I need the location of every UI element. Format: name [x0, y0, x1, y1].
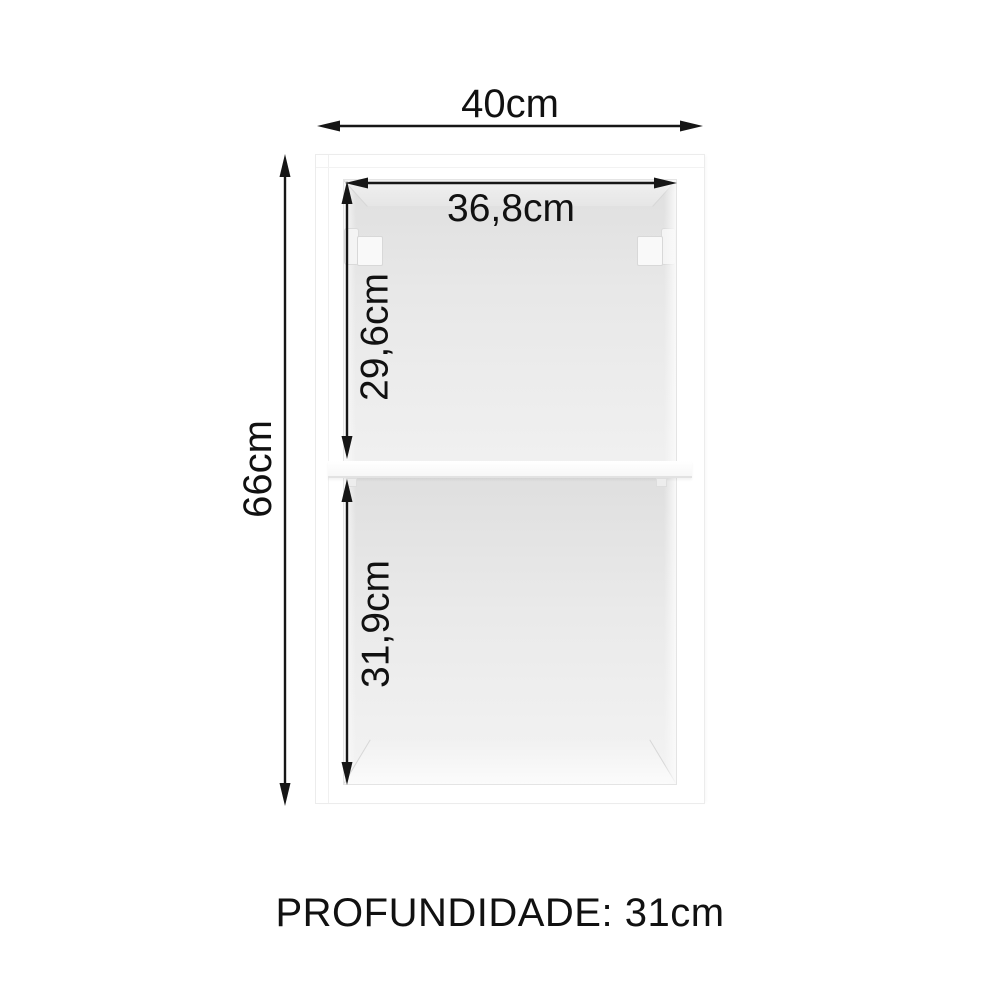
shelf-pin-left: [346, 478, 357, 487]
cabinet-frame-edge: [328, 155, 329, 803]
shelf-pin-right: [656, 478, 667, 487]
hinge-mount-right: [636, 228, 676, 266]
outer-height-arrow: [280, 154, 291, 806]
cabinet-interior: [344, 180, 676, 784]
inner-width-label: 36,8cm: [345, 189, 677, 228]
hinge-mount-left: [344, 228, 384, 266]
interior-floor: [344, 740, 676, 784]
cabinet-frame-edge: [316, 167, 704, 168]
outer-width-label: 40cm: [316, 84, 704, 124]
upper-compartment-height-label: 29,6cm: [356, 273, 395, 401]
depth-label: PROFUNDIDADE: 31cm: [0, 893, 1000, 933]
diagram-canvas: 40cm 36,8cm 66cm 29,6cm 31,9cm PROFUNDID…: [0, 0, 1000, 1000]
cabinet-body: [316, 155, 704, 803]
lower-compartment-height-label: 31,9cm: [357, 560, 396, 688]
outer-height-label: 66cm: [238, 420, 278, 518]
shelf: [328, 461, 692, 478]
